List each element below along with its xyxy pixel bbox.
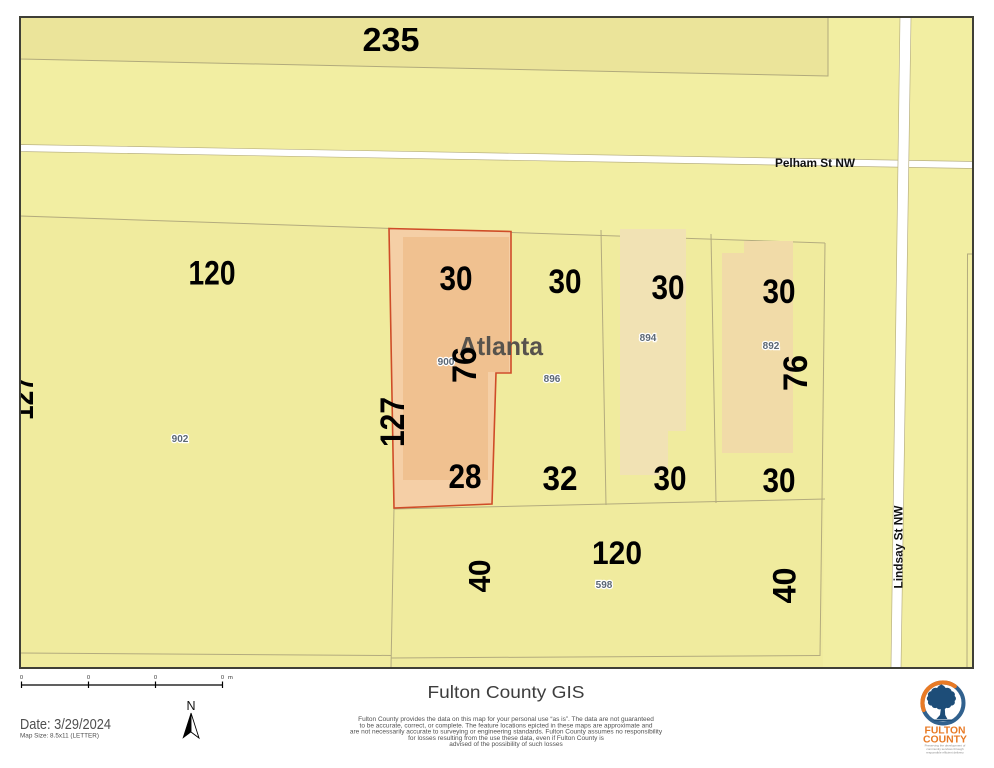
svg-text:896: 896 (544, 374, 561, 385)
svg-text:30: 30 (440, 260, 473, 298)
svg-text:0: 0 (87, 675, 90, 681)
svg-text:40: 40 (767, 568, 803, 604)
svg-text:28: 28 (449, 458, 482, 496)
svg-text:Date: 3/29/2024: Date: 3/29/2024 (20, 717, 111, 733)
svg-text:0: 0 (20, 675, 23, 681)
svg-text:127: 127 (374, 397, 412, 447)
svg-text:76: 76 (777, 355, 815, 391)
svg-text:30: 30 (652, 269, 685, 307)
svg-text:235: 235 (363, 21, 420, 58)
svg-text:120: 120 (592, 535, 642, 571)
svg-text:Pelham St NW: Pelham St NW (775, 158, 855, 170)
svg-text:0: 0 (154, 675, 157, 681)
svg-text:40: 40 (462, 560, 497, 593)
svg-text:Lindsay St NW: Lindsay St NW (894, 505, 906, 588)
svg-text:0: 0 (221, 675, 224, 681)
svg-text:894: 894 (640, 333, 657, 344)
svg-text:Map Size: 8.5x11 (LETTER): Map Size: 8.5x11 (LETTER) (20, 733, 99, 740)
svg-text:76: 76 (446, 347, 484, 383)
svg-text:902: 902 (172, 434, 189, 445)
svg-text:30: 30 (763, 273, 796, 311)
svg-text:30: 30 (654, 460, 687, 498)
svg-text:m: m (228, 675, 233, 681)
svg-text:N: N (186, 699, 195, 713)
svg-text:892: 892 (763, 341, 780, 352)
svg-text:120: 120 (189, 255, 236, 293)
svg-text:32: 32 (543, 460, 578, 498)
svg-text:30: 30 (763, 462, 796, 500)
svg-text:598: 598 (596, 580, 613, 591)
svg-text:Fulton County GIS: Fulton County GIS (428, 682, 585, 702)
svg-text:advised of the possibility of: advised of the possibility of such losse… (449, 741, 563, 748)
svg-text:30: 30 (549, 263, 582, 301)
svg-text:responsible efficient delivery: responsible efficient delivery (926, 751, 964, 755)
